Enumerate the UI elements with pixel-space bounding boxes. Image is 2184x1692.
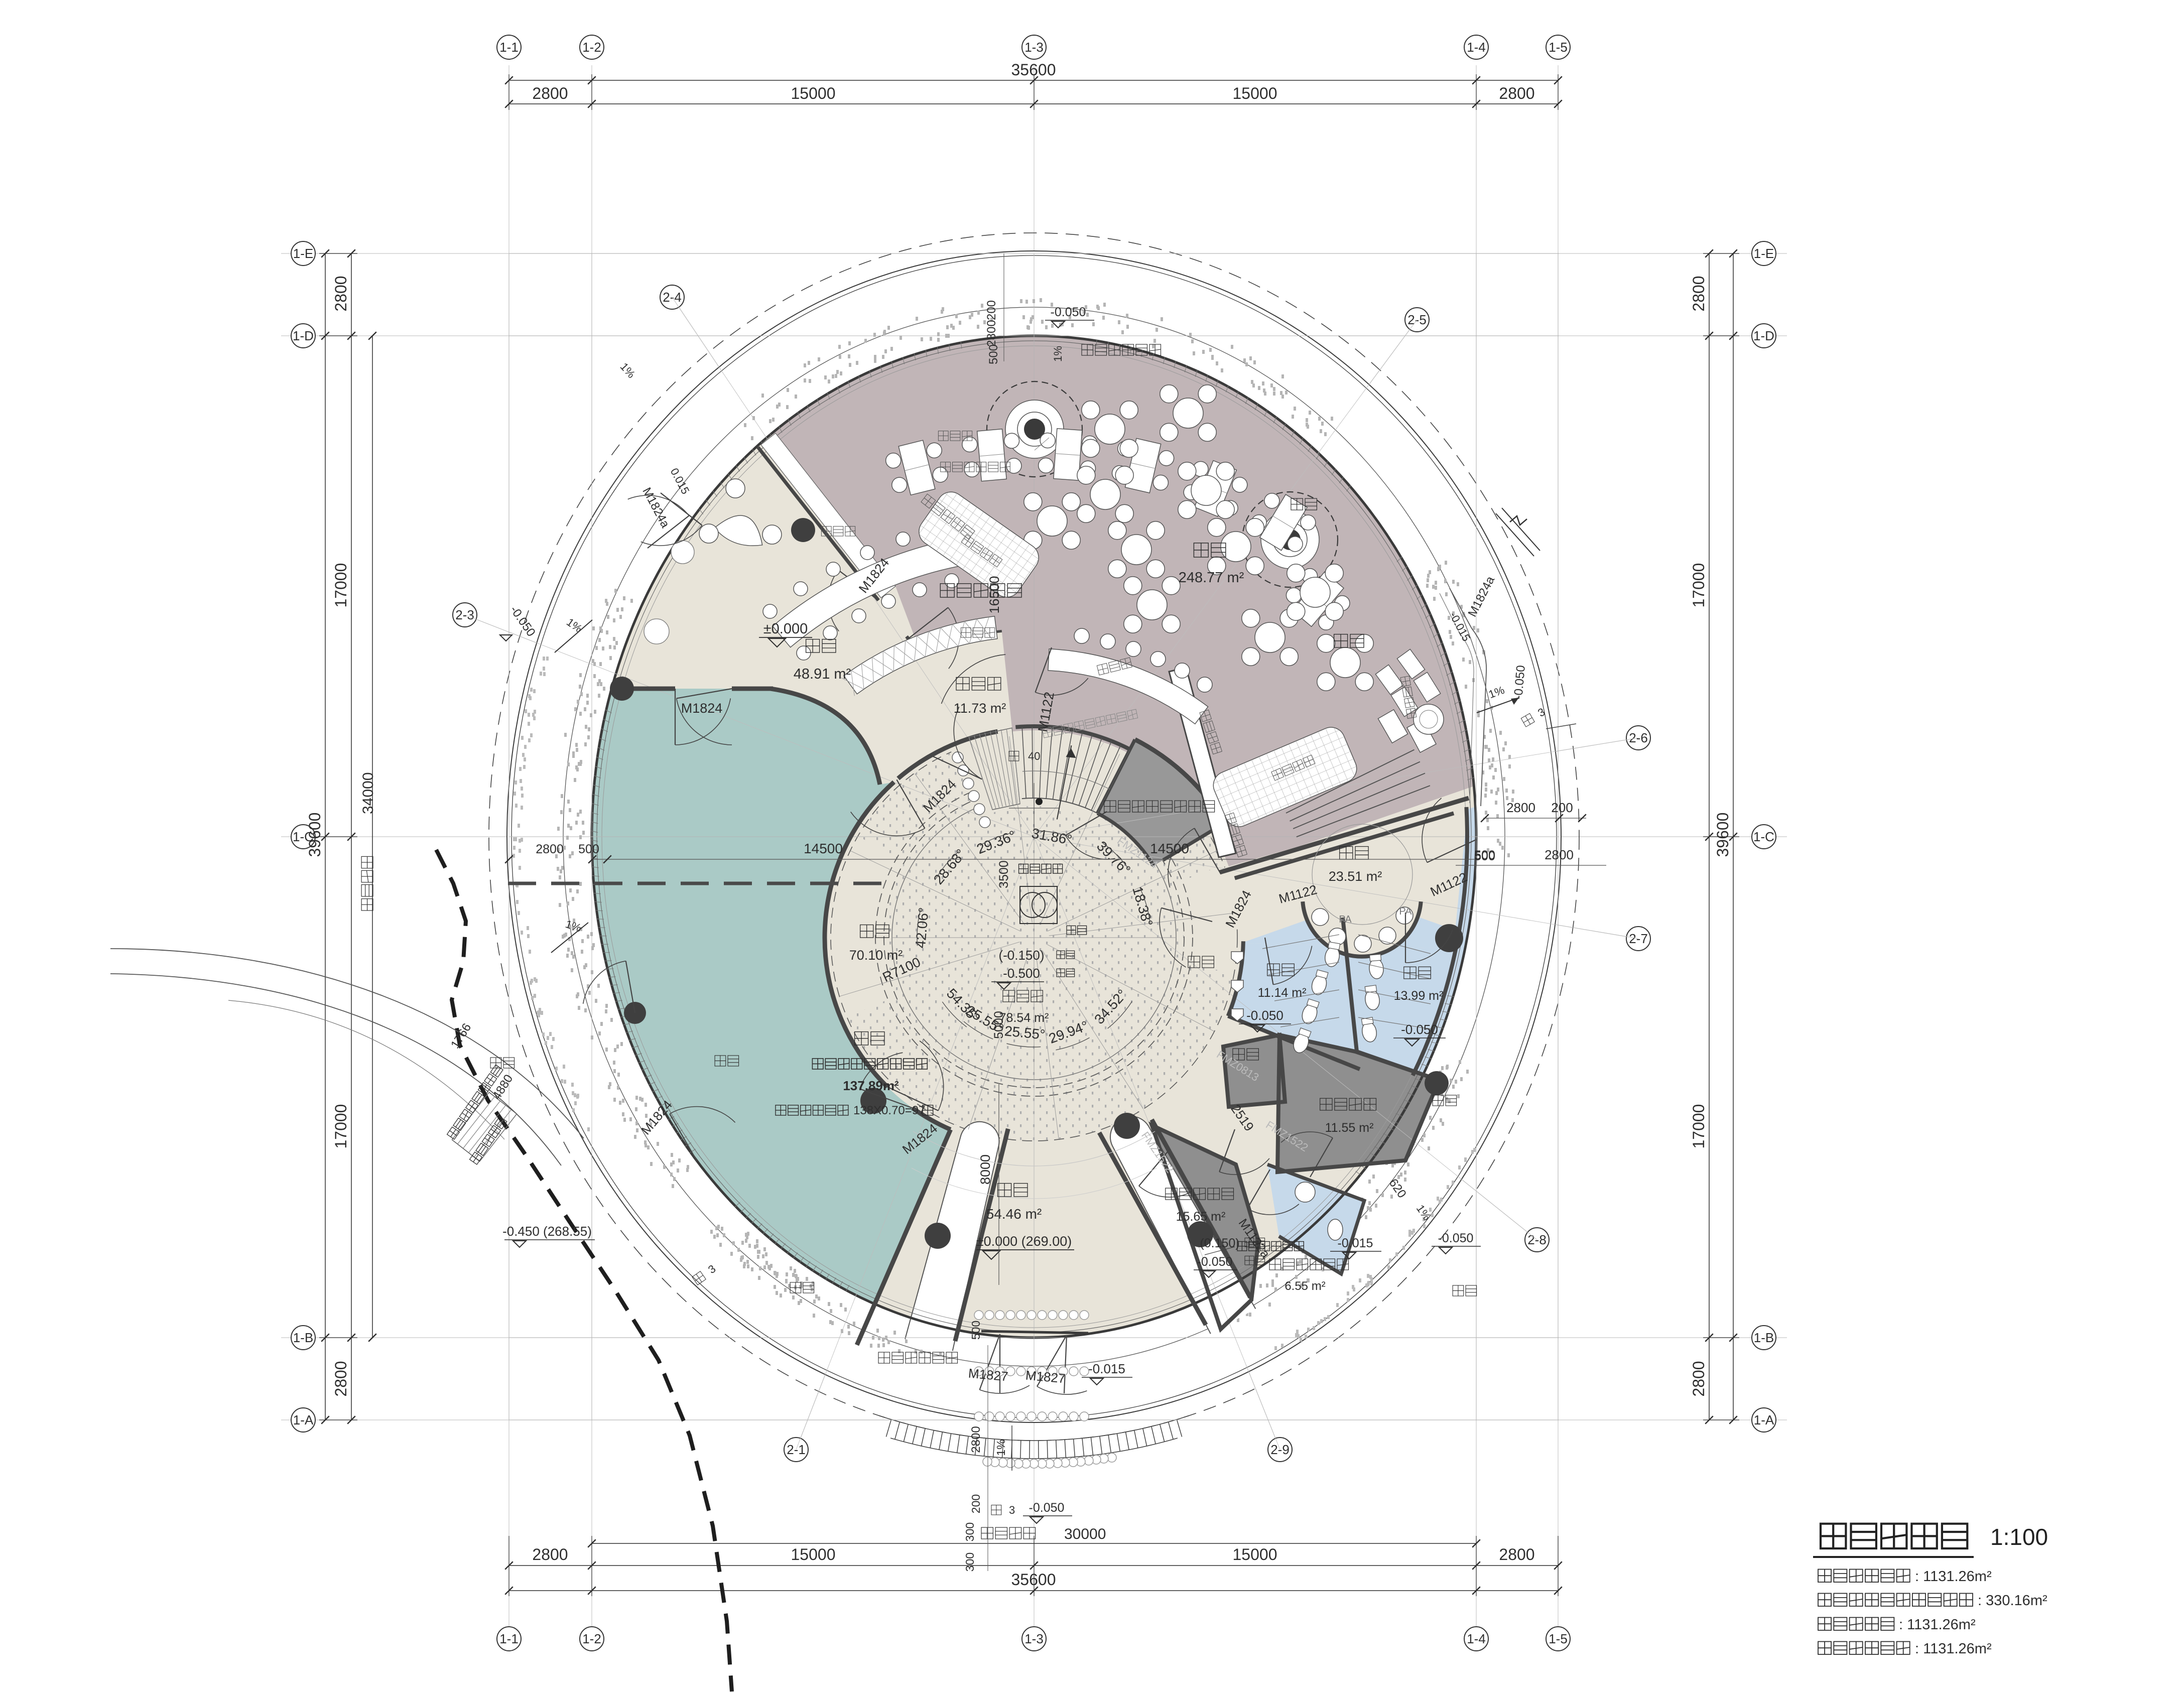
svg-text:: 330.16m²: : 330.16m² [1978,1593,2047,1609]
svg-text:1:100: 1:100 [1990,1524,2048,1550]
svg-text:40: 40 [1028,750,1040,762]
svg-text:2800: 2800 [532,84,568,102]
svg-text:±0.000: ±0.000 [763,621,808,637]
svg-text:-0.450 (268.55): -0.450 (268.55) [502,1224,592,1239]
svg-text:39600: 39600 [306,813,324,857]
svg-text:137.89m²: 137.89m² [843,1078,899,1093]
svg-text:11.14 m²: 11.14 m² [1258,986,1307,1000]
svg-text:35600: 35600 [1011,1571,1056,1589]
svg-text:±0.000 (269.00): ±0.000 (269.00) [976,1234,1072,1249]
svg-text:2800: 2800 [1690,1361,1708,1396]
svg-text:1-C: 1-C [1753,829,1774,844]
svg-text:M1824: M1824 [681,701,723,716]
svg-text:34000: 34000 [360,772,376,814]
svg-text:39600: 39600 [1714,813,1732,857]
svg-text:23.51 m²: 23.51 m² [1329,869,1382,884]
svg-text:-0.050: -0.050 [1197,1255,1233,1269]
svg-text:1-A: 1-A [1754,1412,1774,1427]
svg-text:15000: 15000 [1233,84,1277,102]
svg-text:: 1131.26m²: : 1131.26m² [1915,1569,1992,1585]
svg-text:PA: PA [1399,906,1412,917]
svg-text:200: 200 [969,1494,982,1513]
svg-text:17000: 17000 [1690,1104,1708,1149]
svg-text:-0.500: -0.500 [1003,966,1040,981]
svg-text:17000: 17000 [1690,563,1708,608]
svg-text:-0.015: -0.015 [1338,1236,1373,1250]
svg-text:-0.050: -0.050 [1051,305,1086,319]
svg-text:200: 200 [1551,800,1573,815]
svg-text:1-4: 1-4 [1467,40,1486,55]
svg-text:-0.015: -0.015 [1088,1361,1125,1376]
svg-text:14500: 14500 [804,841,843,856]
svg-text:2800: 2800 [1506,800,1535,815]
svg-text:2800: 2800 [532,1545,568,1564]
svg-text:138X0.70=97: 138X0.70=97 [853,1104,925,1117]
svg-text:200: 200 [985,300,998,320]
svg-text:500: 500 [987,344,1000,364]
svg-text:2800: 2800 [536,842,564,856]
svg-text:1-D: 1-D [1753,328,1774,343]
svg-text:2800: 2800 [332,1361,350,1396]
svg-text:15000: 15000 [791,84,836,102]
svg-text:30000: 30000 [1064,1526,1106,1542]
svg-text:(-0.150): (-0.150) [998,948,1044,963]
svg-text:15000: 15000 [791,1545,836,1564]
svg-text:78.54 m²: 78.54 m² [999,1011,1049,1025]
svg-text:1-B: 1-B [293,1330,313,1345]
svg-text:500: 500 [969,1321,982,1340]
svg-text:1-A: 1-A [293,1412,314,1427]
svg-text:1-3: 1-3 [1024,40,1044,55]
svg-text:16500: 16500 [987,576,1002,613]
svg-text:PA: PA [1339,914,1352,925]
svg-text:300: 300 [963,1522,976,1541]
svg-text:1-B: 1-B [1754,1330,1774,1345]
svg-text:8000: 8000 [978,1154,993,1185]
svg-text:1-E: 1-E [293,246,313,261]
svg-text:248.77 m²: 248.77 m² [1179,570,1244,586]
svg-text:-0.050: -0.050 [1029,1501,1065,1515]
svg-text:(0.150): (0.150) [1200,1236,1239,1250]
svg-text:-0.050: -0.050 [1438,1231,1474,1245]
svg-text:1-5: 1-5 [1549,1631,1568,1646]
svg-text:13.99 m²: 13.99 m² [1394,989,1444,1003]
svg-text:70.10 m²: 70.10 m² [849,948,903,963]
svg-text:500: 500 [578,842,599,856]
svg-text:3500: 3500 [997,860,1011,888]
svg-text:300: 300 [963,1552,976,1572]
svg-text:1-E: 1-E [1754,246,1774,261]
svg-text:1-1: 1-1 [499,1631,519,1646]
svg-text:1-2: 1-2 [582,40,601,55]
svg-text:15000: 15000 [1233,1545,1277,1564]
svg-text:5000: 5000 [992,1011,1006,1039]
svg-text:48.91 m²: 48.91 m² [794,666,851,682]
svg-text:14500: 14500 [1150,841,1189,856]
svg-text:2800: 2800 [332,276,350,311]
svg-text:11.73 m²: 11.73 m² [954,701,1006,716]
svg-text:-0.050: -0.050 [1401,1022,1438,1037]
svg-text:17000: 17000 [332,1104,350,1149]
svg-text:2800: 2800 [1499,1545,1534,1564]
svg-text:500: 500 [1474,848,1495,862]
svg-text:-0.050: -0.050 [1246,1008,1283,1023]
svg-text:: 1131.26m²: : 1131.26m² [1915,1641,1992,1657]
svg-text:11.55 m²: 11.55 m² [1325,1121,1374,1135]
svg-text:6.55 m²: 6.55 m² [1284,1279,1325,1293]
svg-text:2800: 2800 [969,1426,983,1453]
svg-text:15.65 m²: 15.65 m² [1176,1210,1226,1224]
svg-text:3: 3 [1009,1504,1015,1516]
svg-text:2800: 2800 [985,320,998,346]
svg-text:1-5: 1-5 [1549,40,1568,55]
svg-text:35600: 35600 [1011,61,1056,79]
svg-text:2800: 2800 [1690,276,1708,311]
svg-text:1-3: 1-3 [1024,1631,1044,1646]
svg-text:1-D: 1-D [293,328,314,343]
svg-text:1%: 1% [994,1439,1007,1456]
svg-text:17000: 17000 [332,563,350,608]
svg-text:1-4: 1-4 [1467,1631,1486,1646]
svg-text:1-2: 1-2 [582,1631,601,1646]
svg-text:: 1131.26m²: : 1131.26m² [1899,1617,1976,1633]
svg-text:2800: 2800 [1545,847,1574,862]
svg-text:2800: 2800 [1499,84,1534,102]
svg-text:1-1: 1-1 [499,40,519,55]
svg-text:1%: 1% [1052,346,1064,362]
svg-text:54.46 m²: 54.46 m² [986,1206,1042,1222]
